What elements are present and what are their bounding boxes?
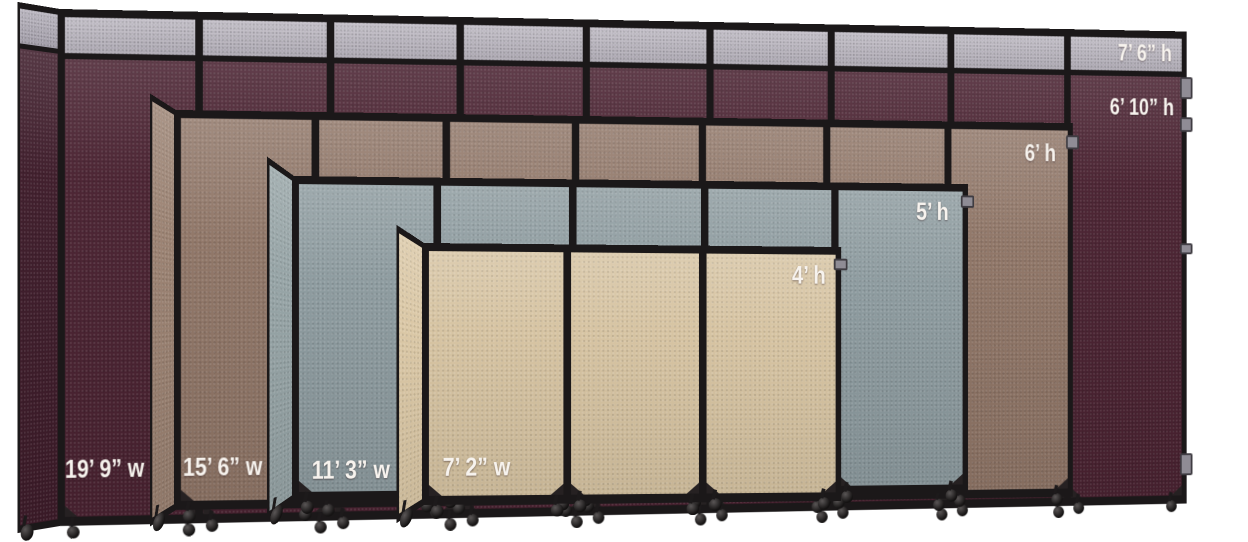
width-label: 19’ 9” w (65, 455, 144, 482)
mounting-bracket (1180, 453, 1192, 475)
caster-wheel (571, 516, 583, 529)
mounting-bracket (1066, 135, 1079, 149)
height-label: 5’ h (916, 199, 949, 224)
caster-wheel (574, 499, 587, 512)
caster-wheel (431, 505, 444, 518)
height-label-extended: 7’ 6” h (1118, 40, 1172, 65)
caster-wheel (322, 504, 335, 517)
width-label: 15’ 6” w (183, 453, 263, 480)
mounting-bracket (834, 259, 848, 271)
corner-bracket (824, 482, 836, 493)
caster-wheel (315, 521, 327, 534)
joint-bracket (551, 484, 564, 495)
corner-bracket (429, 485, 442, 496)
panel-divider (563, 252, 571, 494)
height-label: 6’ 10” h (1109, 94, 1173, 119)
caster-wheel (21, 523, 34, 541)
end-panel (17, 2, 60, 533)
caster-wheel (67, 526, 80, 539)
height-extender-strip-end (20, 8, 58, 53)
mounting-bracket (961, 195, 974, 207)
width-label: 11’ 3” w (312, 456, 390, 483)
caster-wheel (695, 513, 707, 526)
caster-wheel (1073, 502, 1084, 514)
corner-bracket (1171, 485, 1182, 495)
caster-wheel (206, 519, 218, 532)
corner-bracket (299, 481, 312, 492)
caster-wheel (338, 516, 350, 529)
caster-wheel (716, 509, 728, 522)
caster-wheel (946, 489, 958, 502)
width-label: 7’ 2” w (443, 453, 511, 479)
caster-wheel (466, 514, 478, 527)
corner-bracket (181, 490, 194, 501)
caster-wheel (1053, 506, 1064, 518)
caster-wheel (551, 504, 564, 517)
panel-divider (699, 253, 707, 493)
height-label: 4’ h (792, 262, 826, 288)
partition-body: 4’ h7’ 2” w (424, 243, 841, 505)
caster-wheel (444, 518, 456, 531)
caster-wheel (183, 523, 196, 536)
caster-wheel (818, 497, 830, 510)
caster-wheel (687, 502, 699, 515)
caster-wheel (709, 498, 721, 511)
corner-bracket (65, 506, 78, 517)
mounting-bracket (1180, 77, 1192, 99)
corner-bracket (951, 474, 963, 485)
height-label: 6’ h (1024, 140, 1055, 165)
joint-bracket (687, 483, 699, 494)
caster-wheel (593, 511, 605, 524)
caster-wheel (1166, 500, 1177, 512)
room-divider-size-comparison-image: 7’ 6” h6’ 10” h19’ 9” w6’ h15’ 6” w5’ h1… (0, 0, 1248, 542)
corner-bracket (1057, 478, 1068, 488)
mounting-bracket (1180, 243, 1192, 254)
height-extender-strip (65, 17, 1182, 77)
mounting-bracket (1180, 117, 1192, 132)
